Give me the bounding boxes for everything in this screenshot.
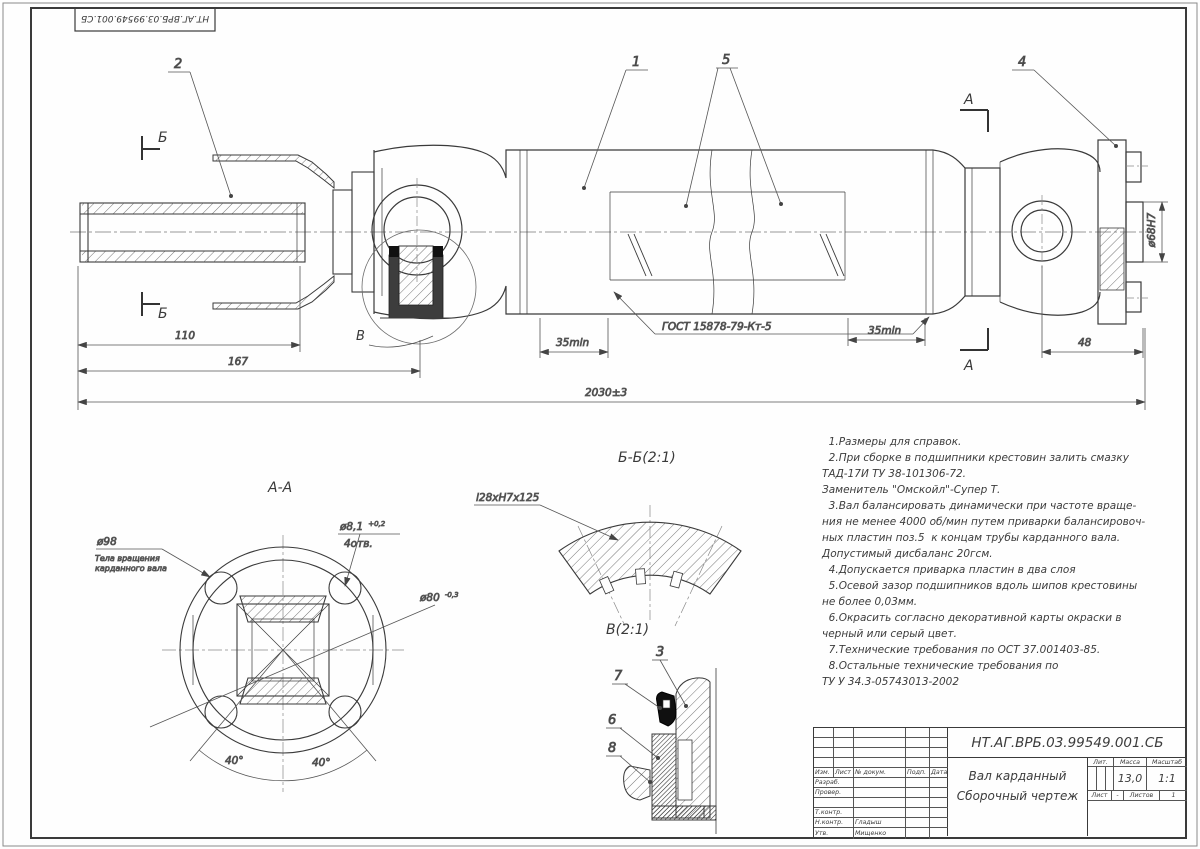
section-marks: Б Б А А [142,92,988,374]
section-b-bottom: Б [142,292,168,322]
note-line: Допустимый дисбаланс 20гсм. [822,546,1114,562]
detail-v-letter: В [356,329,365,344]
sheet-value: - [1112,791,1124,801]
callout-2: 2 [168,57,233,198]
drawing-sheet: НТ.АГ.ВРБ.03.99549.001.СБ [0,0,1200,849]
section-a-top: А [960,92,988,132]
note-line: 7.Технические требования по ОСТ 37.00140… [822,642,1114,658]
section-b-bottom-letter: Б [158,306,168,322]
note-line: 4.Допускается приварка пластин в два сло… [822,562,1114,578]
dim-35min-left: 35min [556,337,589,349]
note-line: ТУ У 34.3-05743013-2002 [822,674,1114,690]
title-block-left: Изм. Лист № докум. Подп. Дата Разраб. Пр… [814,728,948,836]
drawing-canvas: НТ.АГ.ВРБ.03.99549.001.СБ [0,0,1200,849]
note-line: не более 0,03мм. [822,594,1114,610]
bearing-cup [380,246,452,318]
callout-7-number: 7 [614,669,623,684]
col-doc: № докум. [854,768,906,778]
title-block-right: НТ.АГ.ВРБ.03.99549.001.СБ Вал карданный … [948,728,1187,836]
mass-value: 13,0 [1114,767,1147,791]
dim-d81-qty: 4отв. [344,538,373,550]
callout-1: 1 [582,55,648,190]
dim-d80-tol: -0,3 [445,591,459,599]
dim-d81: ø8,1 [339,521,363,533]
callout-4-number: 4 [1018,55,1026,70]
svg-text:ø80 -0,3: ø80 -0,3 [419,586,459,605]
sheets-value: 1 [1160,791,1187,801]
corner-stamp-text: НТ.АГ.ВРБ.03.99549.001.СБ [81,13,209,23]
lit-label: Лит. [1088,758,1114,767]
callout-5-number: 5 [722,53,730,68]
note-line: 8.Остальные технические требования по [822,658,1114,674]
d98-note-1: Тела вращения [95,554,160,563]
circlip [624,766,650,800]
drawing-title: Вал карданный Сборочный чертеж [948,758,1088,836]
note-line: 6.Окрасить согласно декоративной карты о… [822,610,1114,626]
row-razrab: Разраб. [814,778,854,788]
doc-type: Сборочный чертеж [948,786,1087,806]
col-izm: Изм. [814,768,834,778]
scale-value: 1:1 [1147,767,1187,791]
spline-spec: l28хН7х125 [476,492,540,504]
row-utv: Утв. [814,828,854,839]
note-line: черный или серый цвет. [822,626,1114,642]
section-bb-title: Б-Б(2:1) [618,450,676,466]
main-view: В [70,53,1168,410]
sheet-label: Лист [1088,791,1112,801]
section-aa-title: А-А [267,480,292,496]
section-aa-view: А-А 40° 40° [95,480,459,792]
note-line: 1.Размеры для справок. [822,434,1114,450]
dim-d81-tol: +0,2 [368,520,386,528]
detail-v-title: В(2:1) [606,622,649,638]
dim-110: 110 [175,330,195,342]
dim-d80: ø80 [419,592,440,604]
dim-d98: ø98 [96,536,117,548]
note-line: ния не менее 4000 об/мин путем приварки … [822,514,1114,530]
balance-plates [628,234,844,276]
mass-label: Масса [1114,758,1147,767]
callouts: 2 1 5 4 [168,53,1118,208]
row-prover: Провер. [814,788,854,798]
lit-mass-scale-grid: Лит. Масса Масштаб 13,0 1:1 Лист - Листо… [1088,758,1187,836]
note-line: 3.Вал балансировать динамически при част… [822,498,1114,514]
title-block: Изм. Лист № докум. Подп. Дата Разраб. Пр… [813,727,1186,838]
tech-notes: 1.Размеры для справок. 2.При сборке в по… [822,434,1114,690]
dim-total-length: 2030±3 [585,387,627,399]
base-strip [652,806,716,820]
angle-left: 40° [225,755,244,767]
note-line: 5.Осевой зазор подшипников вдоль шипов к… [822,578,1114,594]
callout-4: 4 [1012,55,1118,148]
name-utv: Мищенко [854,828,906,839]
row-nkontr: Н.контр. [814,818,854,828]
note-line: ТАД-17И ТУ 38-101306-72. [822,466,1114,482]
row-tkontr: Т.контр. [814,808,854,818]
d98-note-2: карданного вала [95,564,167,573]
dim-48: 48 [1078,337,1092,349]
sheets-label: Листов [1124,791,1160,801]
callout-2-number: 2 [174,57,182,72]
corner-stamp: НТ.АГ.ВРБ.03.99549.001.СБ [75,8,215,31]
section-a-top-letter: А [963,92,974,108]
slip-shaft [80,203,305,262]
col-date: Дата [930,768,948,778]
product-name: Вал карданный [948,766,1087,786]
callout-5: 5 [684,53,783,208]
callout-1-number: 1 [632,55,640,70]
note-line: Заменитель "Омскойл"-Супер Т. [822,482,1114,498]
section-a-bottom-letter: А [963,358,974,374]
section-b-top: Б [142,130,168,160]
callout-6-number: 6 [608,713,616,728]
note-line: ных пластин поз.5 к концам трубы карданн… [822,530,1114,546]
col-list: Лист [834,768,854,778]
dim-167: 167 [228,356,248,368]
dim-flange-pilot: ø68Н7 [1146,213,1158,249]
note-line: 2.При сборке в подшипники крестовин зали… [822,450,1114,466]
scale-label: Масштаб [1147,758,1187,767]
callout-8-number: 8 [608,741,616,756]
callout-3-number: 3 [656,645,664,660]
weld-spec: ГОСТ 15878-79-Кт-5 [662,321,772,333]
doc-number: НТ.АГ.ВРБ.03.99549.001.СБ [948,728,1187,758]
angle-right: 40° [312,757,331,769]
detail-v-view: В(2:1) 3 7 6 8 [606,622,716,834]
needle-rollers [678,740,692,800]
sheet-frame [3,3,1197,846]
section-b-top-letter: Б [158,130,168,146]
col-sign: Подп. [906,768,930,778]
section-bb-view: Б-Б(2:1) l28хН7х125 [474,450,741,626]
name-nkontr: Гладыш [854,818,906,828]
svg-text:ø8,1 +0,2: ø8,1 +0,2 [339,515,386,534]
section-a-bottom: А [960,328,988,374]
dim-35min-right: 35min [868,325,901,337]
